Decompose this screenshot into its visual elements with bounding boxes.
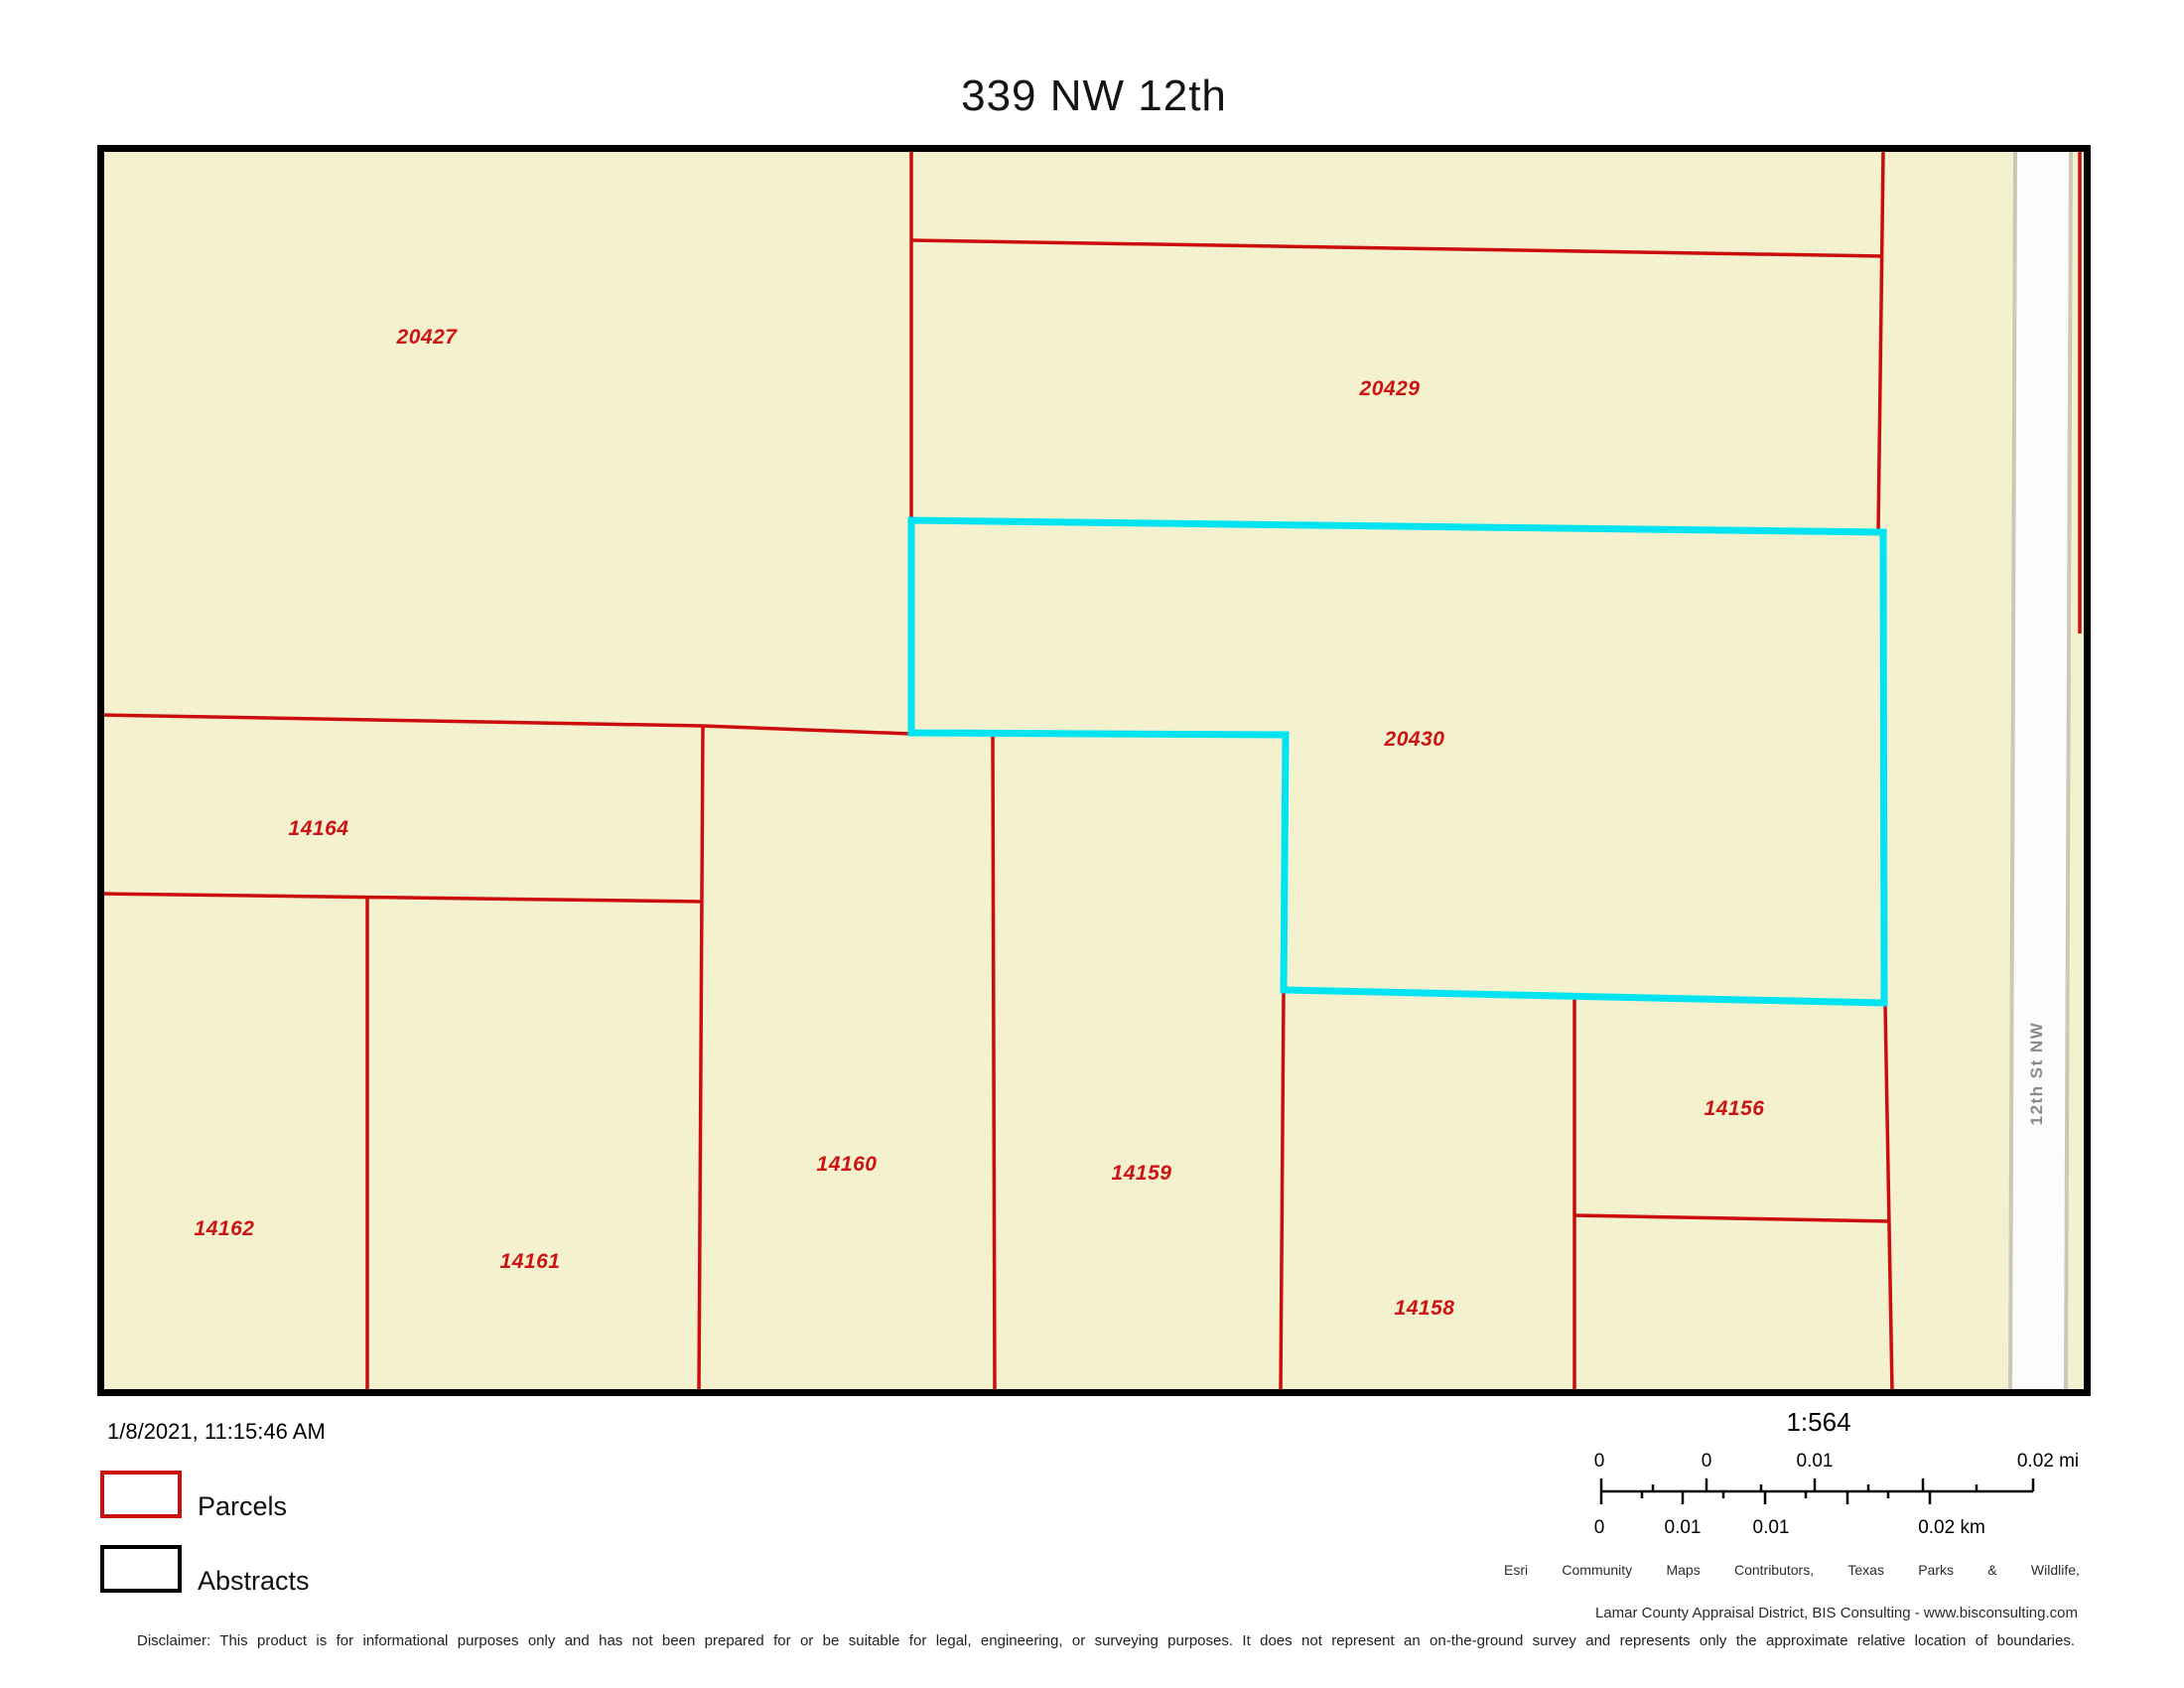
page-title: 339 NW 12th: [97, 71, 2091, 121]
parcel-label: 14162: [195, 1217, 255, 1241]
scale-km-label: 0.01: [1753, 1517, 1790, 1539]
parcel-label: 14156: [1705, 1097, 1765, 1121]
legend-label-abstracts: Abstracts: [198, 1566, 310, 1597]
parcel-label: 14161: [500, 1250, 561, 1274]
street-12th-st-nw: [2010, 149, 2071, 1392]
legend-swatch-parcels: [100, 1471, 182, 1518]
legend-swatch-abstracts: [100, 1545, 182, 1593]
parcel-label-selected: 20430: [1385, 728, 1445, 752]
map-canvas: 20427 20429 20430 14164 14162 14161 1416…: [97, 145, 2091, 1396]
scale-mi-label: 0.01: [1797, 1451, 1834, 1473]
scale-km-label: 0: [1594, 1517, 1605, 1539]
scale-mi-label: 0: [1594, 1451, 1605, 1473]
parcel-label: 14158: [1395, 1297, 1455, 1321]
disclaimer-text: Disclaimer: This product is for informat…: [137, 1632, 2075, 1649]
scale-mi-label: 0.02 mi: [2017, 1451, 2079, 1473]
scale-mi-label: 0: [1702, 1451, 1712, 1473]
scale-km-label: 0.01: [1665, 1517, 1702, 1539]
scale-bar: [1588, 1477, 2055, 1507]
parcel-label: 20429: [1360, 377, 1421, 401]
parcel-label: 14159: [1112, 1162, 1172, 1186]
legend-label-parcels: Parcels: [198, 1491, 287, 1522]
street-name-label: 12th St NW: [2027, 1022, 2047, 1126]
parcel-label: 14160: [817, 1153, 878, 1177]
parcel-label: 20427: [397, 326, 458, 350]
export-timestamp: 1/8/2021, 11:15:46 AM: [107, 1419, 326, 1445]
parcel-label: 14164: [289, 817, 349, 841]
attribution-esri: Esri Community Maps Contributors, Texas …: [1504, 1562, 2080, 1578]
attribution-appraisal-district: Lamar County Appraisal District, BIS Con…: [1489, 1605, 2078, 1621]
scale-km-label: 0.02 km: [1918, 1517, 1985, 1539]
scale-ratio: 1:564: [1786, 1407, 1850, 1438]
